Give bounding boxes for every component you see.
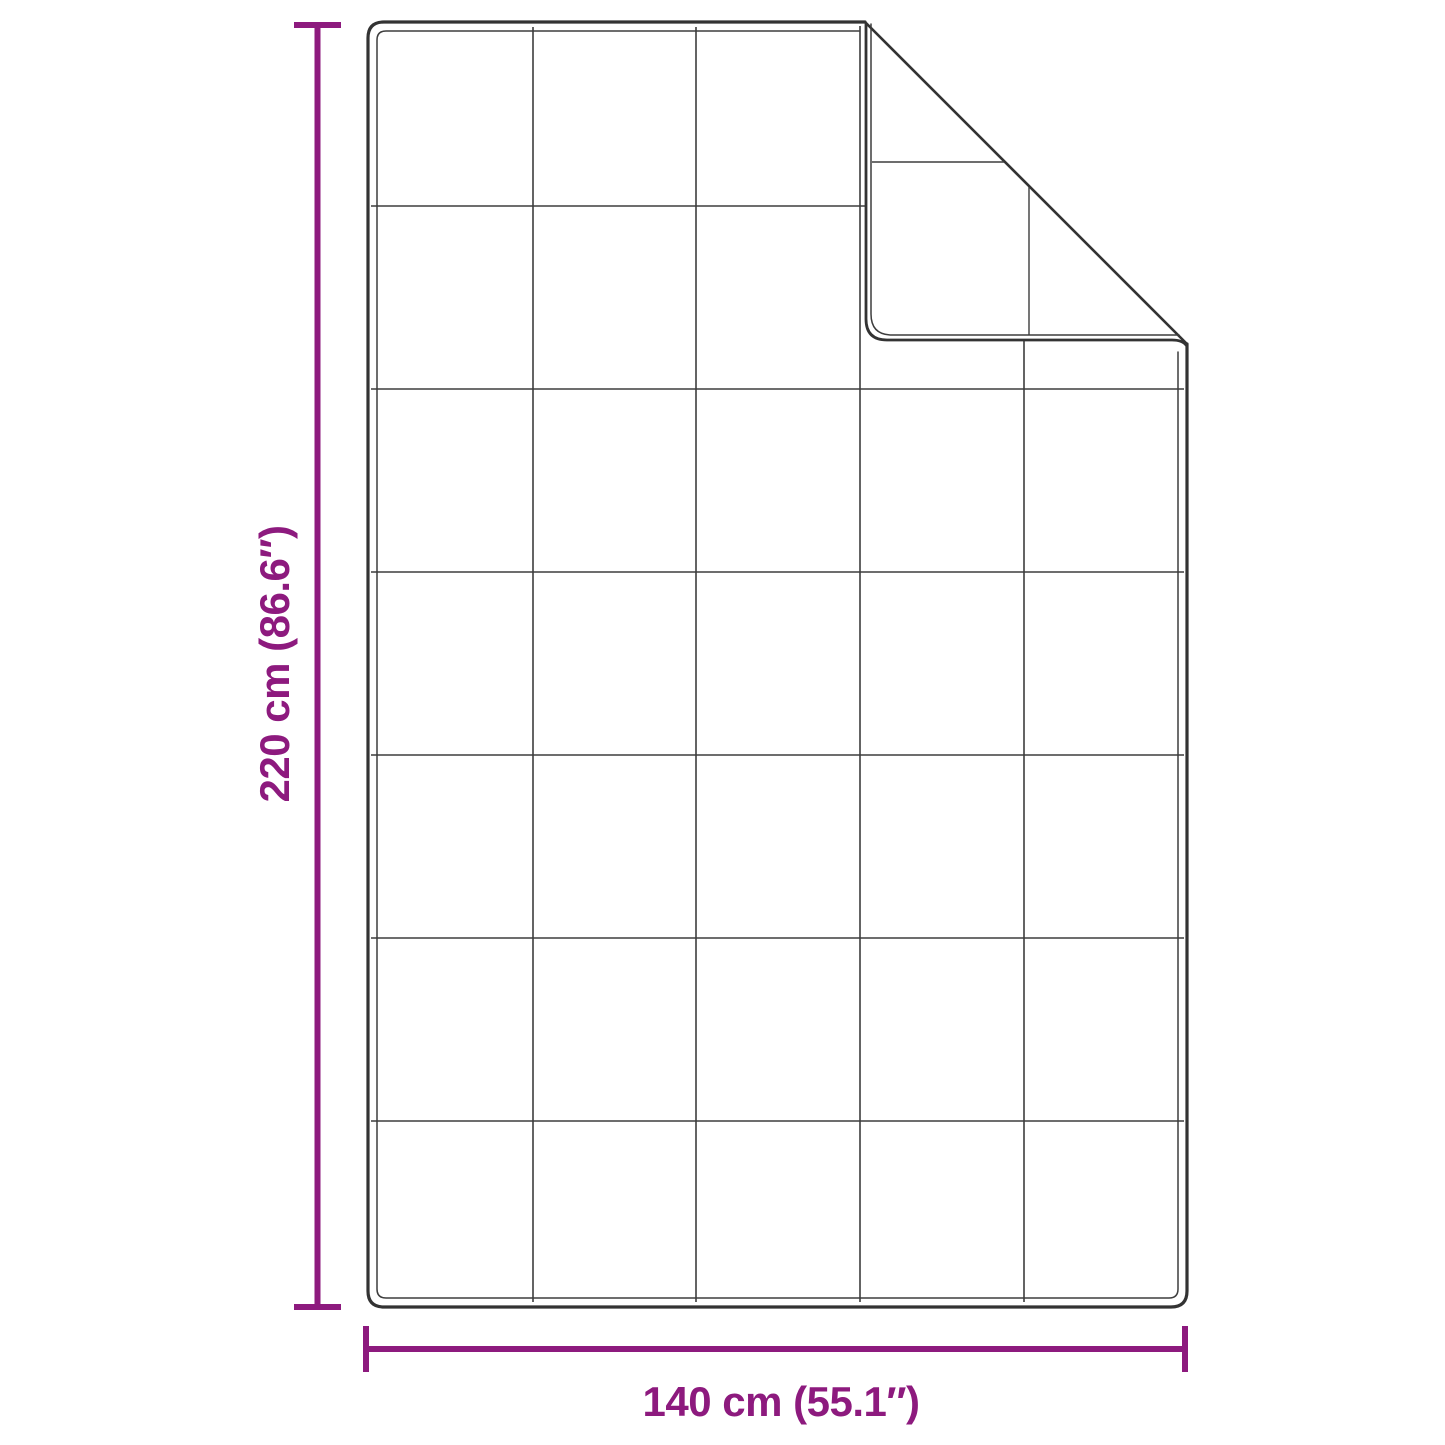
width-dimension: 140 cm (55.1″) [366,1326,1185,1425]
height-dimension: 220 cm (86.6″) [251,25,341,1307]
height-dimension-label: 220 cm (86.6″) [251,526,298,803]
blanket-outline [368,22,1187,1307]
blanket-outer-edge [368,22,1187,1307]
fold-crease-line [865,22,1187,344]
blanket-inner-hem-line [377,31,1178,1298]
dimension-diagram: 220 cm (86.6″) 140 cm (55.1″) [0,0,1445,1445]
width-dimension-label: 140 cm (55.1″) [643,1378,920,1425]
diagram-canvas: 220 cm (86.6″) 140 cm (55.1″) [0,0,1445,1445]
